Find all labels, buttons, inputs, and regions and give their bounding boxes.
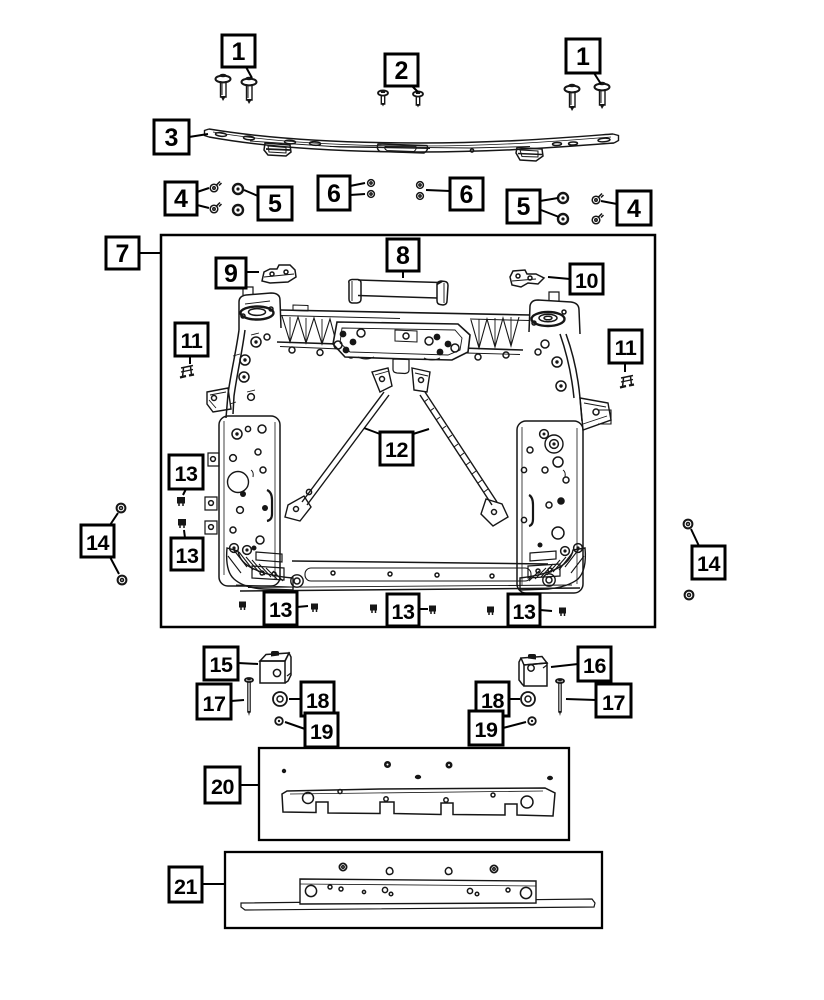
svg-text:6: 6 xyxy=(327,180,341,208)
svg-text:4: 4 xyxy=(627,195,641,223)
svg-text:16: 16 xyxy=(583,654,606,678)
svg-text:10: 10 xyxy=(575,269,598,293)
svg-text:18: 18 xyxy=(481,689,504,713)
svg-text:5: 5 xyxy=(268,190,282,218)
svg-text:11: 11 xyxy=(615,336,637,360)
svg-text:14: 14 xyxy=(697,552,720,576)
svg-text:7: 7 xyxy=(116,240,130,268)
svg-text:18: 18 xyxy=(306,689,329,713)
svg-text:20: 20 xyxy=(211,775,234,799)
svg-text:13: 13 xyxy=(175,462,198,486)
svg-text:17: 17 xyxy=(602,691,625,715)
svg-text:8: 8 xyxy=(396,242,410,270)
svg-text:15: 15 xyxy=(210,653,233,677)
svg-text:4: 4 xyxy=(174,185,188,213)
svg-text:13: 13 xyxy=(513,600,536,624)
svg-text:14: 14 xyxy=(86,531,109,555)
svg-text:13: 13 xyxy=(392,600,415,624)
svg-text:2: 2 xyxy=(395,57,409,85)
svg-text:12: 12 xyxy=(385,438,408,462)
svg-text:13: 13 xyxy=(176,544,199,568)
svg-text:21: 21 xyxy=(174,875,197,899)
svg-text:13: 13 xyxy=(269,598,292,622)
svg-text:19: 19 xyxy=(475,718,498,742)
svg-text:1: 1 xyxy=(232,38,246,66)
svg-text:11: 11 xyxy=(181,329,203,353)
svg-text:6: 6 xyxy=(460,181,474,209)
svg-text:1: 1 xyxy=(576,43,590,71)
svg-text:3: 3 xyxy=(165,124,179,152)
svg-text:19: 19 xyxy=(310,720,333,744)
svg-text:17: 17 xyxy=(203,692,226,716)
svg-text:9: 9 xyxy=(224,260,238,288)
svg-text:5: 5 xyxy=(517,193,531,221)
